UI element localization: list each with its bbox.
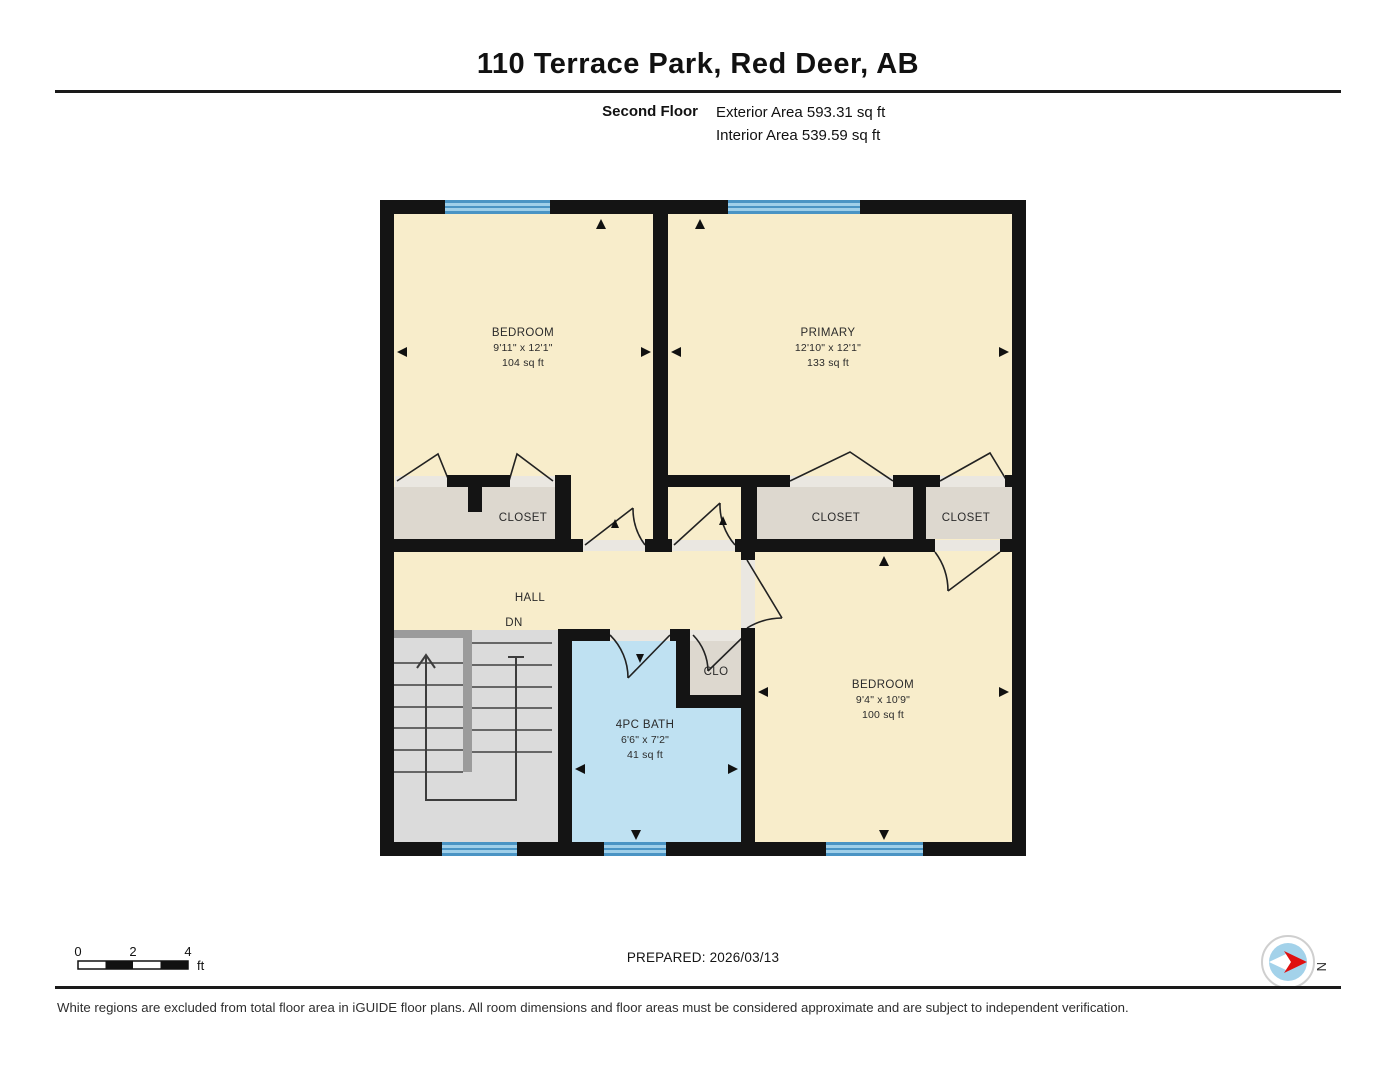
svg-text:104 sq ft: 104 sq ft bbox=[502, 357, 544, 369]
window bbox=[728, 200, 860, 214]
svg-text:100 sq ft: 100 sq ft bbox=[862, 709, 904, 721]
svg-text:12'10" x 12'1": 12'10" x 12'1" bbox=[795, 342, 861, 354]
disclaimer-text: White regions are excluded from total fl… bbox=[57, 1000, 1357, 1015]
window bbox=[442, 842, 517, 856]
svg-text:133 sq ft: 133 sq ft bbox=[807, 357, 849, 369]
window bbox=[604, 842, 666, 856]
room-label-closet-right: CLOSET bbox=[942, 512, 990, 524]
svg-text:41 sq ft: 41 sq ft bbox=[627, 749, 663, 761]
floor-plan-page: 110 Terrace Park, Red Deer, AB Second Fl… bbox=[0, 0, 1396, 1080]
svg-text:9'4" x 10'9": 9'4" x 10'9" bbox=[856, 694, 910, 706]
room-label-closet-middle: CLOSET bbox=[812, 512, 860, 524]
svg-text:BEDROOM: BEDROOM bbox=[852, 679, 914, 691]
room-label-hall: HALL bbox=[515, 592, 546, 604]
prepared-date: PREPARED: 2026/03/13 bbox=[0, 950, 1396, 965]
svg-text:PRIMARY: PRIMARY bbox=[801, 327, 856, 339]
svg-text:BEDROOM: BEDROOM bbox=[492, 327, 554, 339]
room-label-clo: CLO bbox=[704, 666, 729, 678]
floor-plan-svg: BEDROOM 9'11" x 12'1" 104 sq ft PRIMARY … bbox=[0, 0, 1396, 1080]
svg-text:9'11" x 12'1": 9'11" x 12'1" bbox=[493, 342, 552, 354]
svg-text:4PC BATH: 4PC BATH bbox=[616, 719, 675, 731]
staircase bbox=[394, 630, 558, 843]
footer-divider bbox=[55, 986, 1341, 989]
window bbox=[826, 842, 923, 856]
hall-dn-label: DN bbox=[505, 617, 522, 629]
room-label-closet-left: CLOSET bbox=[499, 512, 547, 524]
floor-plan: BEDROOM 9'11" x 12'1" 104 sq ft PRIMARY … bbox=[380, 200, 1026, 856]
svg-text:6'6" x 7'2": 6'6" x 7'2" bbox=[621, 734, 669, 746]
window bbox=[445, 200, 550, 214]
